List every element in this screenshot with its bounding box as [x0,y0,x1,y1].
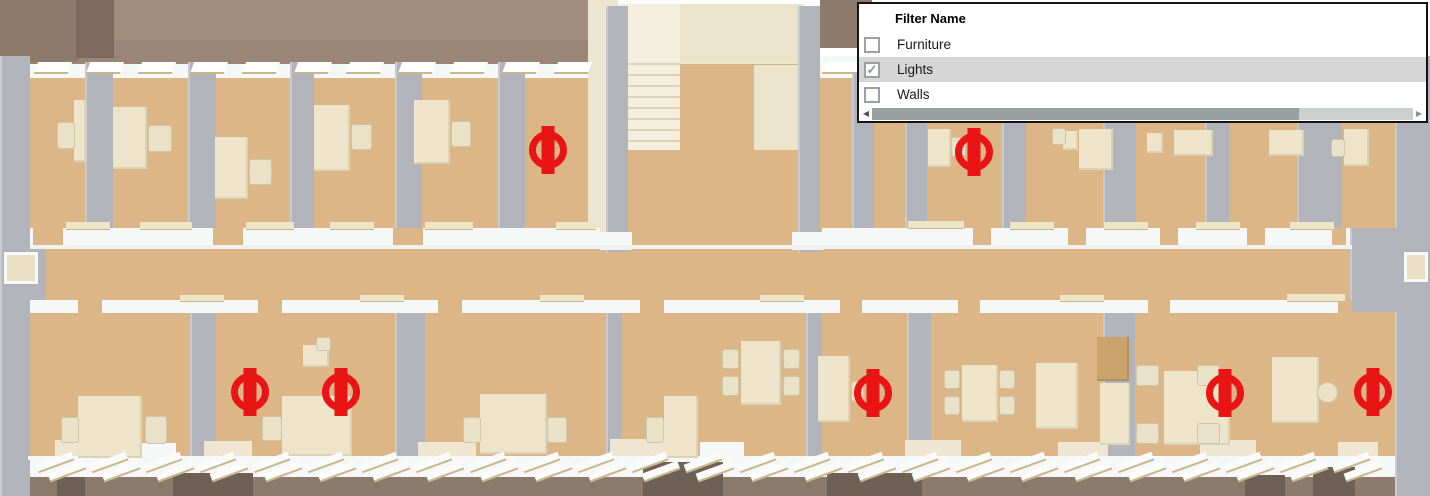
roof-corner [0,0,78,62]
chair [722,376,739,396]
desk [113,107,147,169]
door-opening [1247,228,1265,245]
window-sill [1287,294,1345,302]
chair [722,349,739,369]
desk [664,396,698,458]
window-unit [554,62,592,74]
window-unit [138,62,176,74]
chair [783,376,800,396]
chair [1136,423,1159,444]
stair-landing [680,4,804,64]
door-opening [958,300,980,313]
partition-wall [498,62,525,248]
partition-wall [395,313,425,460]
stairwell-pillar [606,6,628,252]
window-sill [1104,222,1148,230]
corridor-wall-edge [30,245,1352,249]
door-opening [213,228,243,245]
chair [1317,382,1338,403]
window-sill [760,295,804,302]
desk [928,129,951,167]
door-opening [1160,228,1178,245]
chair [1197,423,1220,444]
door-opening [1068,228,1086,245]
desk [1079,129,1113,170]
scrollbar-track[interactable] [872,108,1413,120]
chair [451,121,471,147]
window-sill [180,295,224,302]
partition-wall [188,62,216,248]
chair [944,370,960,389]
chair [463,417,481,443]
end-window [1404,252,1428,282]
window-unit [86,62,124,74]
chair [547,417,567,443]
window-sill [908,221,964,229]
wall-corner [0,460,30,496]
filter-panel: Filter Name Furniture✓LightsWalls ◀ ▶ [857,2,1428,123]
model-viewport[interactable]: Filter Name Furniture✓LightsWalls ◀ ▶ [0,0,1430,496]
conference-table [741,341,781,405]
base-shadow [1245,475,1285,496]
base-shadow [57,477,85,496]
light-fixture-symbol [951,128,997,176]
window-unit [242,62,280,74]
door-opening [33,228,63,245]
door-opening [640,300,664,313]
desk-return [1147,133,1163,153]
light-bar-icon [1367,368,1380,416]
chair [316,337,331,351]
chair [249,159,272,185]
filter-row-lights[interactable]: ✓Lights [859,57,1426,82]
corridor-wall [822,228,1350,245]
roof-facet [112,0,592,40]
light-fixture-symbol [525,126,571,174]
window-sill [1196,222,1240,230]
chair [1052,128,1066,145]
partition-wall [907,313,931,460]
window-sill [1010,222,1054,230]
light-bar-icon [867,369,880,417]
window-unit [450,62,488,74]
filter-row-label: Furniture [897,37,951,52]
desk [1036,363,1078,429]
desk [1269,130,1304,156]
wall-corner [1395,456,1430,496]
light-bar-icon [335,368,348,416]
partition-wall [606,313,622,460]
filter-list: Furniture✓LightsWalls [859,32,1426,107]
light-fixture-symbol [318,368,364,416]
chair [999,396,1015,415]
chair [57,122,75,149]
window-unit [34,62,72,74]
roof-corner-facet [76,0,114,58]
window-sill [360,295,404,302]
checkbox-walls[interactable] [864,87,880,103]
desk [1272,357,1319,423]
chair [61,417,79,443]
desk [215,137,248,199]
scroll-right-arrow-icon[interactable]: ▶ [1413,107,1425,121]
stairwell-panel [754,65,800,150]
stairwell-pillar [798,6,820,252]
window-unit [398,62,436,74]
window-sill [425,222,473,230]
scrollbar-thumb[interactable] [872,108,1299,120]
end-door [4,252,38,284]
door-opening [1148,300,1170,313]
filter-row-furniture[interactable]: Furniture [859,32,1426,57]
window-sill [66,222,110,230]
light-bar-icon [244,368,257,416]
desk [78,396,142,458]
window-unit [190,62,228,74]
chair [1136,365,1159,386]
window-sill [330,222,374,230]
wall-segment [700,442,744,457]
chair [944,396,960,415]
light-bar-icon [542,126,555,174]
entry-opening [682,65,754,150]
window-unit [294,62,332,74]
light-bar-icon [1219,369,1232,417]
window-sill [556,222,596,230]
door-opening [1332,228,1346,245]
partition-wall [190,313,216,460]
desk [480,394,547,454]
filter-row-walls[interactable]: Walls [859,82,1426,107]
cabinet [1100,383,1130,445]
partition-wall [85,62,113,248]
door-opening [840,300,862,313]
chair [145,416,167,444]
chair [783,349,800,369]
filter-panel-title: Filter Name [859,4,1426,32]
checkbox-furniture[interactable] [864,37,880,53]
corridor-wall [30,228,600,245]
light-bar-icon [968,128,981,176]
chair [1331,139,1345,157]
window-unit [502,62,540,74]
door-opening [393,228,423,245]
conference-table [962,365,998,422]
filter-row-label: Lights [897,62,933,77]
horizontal-scrollbar[interactable]: ◀ ▶ [859,107,1426,121]
chair [999,370,1015,389]
desk [1174,130,1213,156]
window-sill [1290,222,1334,230]
light-fixture-symbol [850,369,896,417]
light-fixture-symbol [227,368,273,416]
desk [818,356,850,422]
cabinet [1097,337,1129,381]
window-unit [346,62,384,74]
chair [148,125,172,152]
door-opening [78,300,102,313]
chair [646,417,664,443]
desk [314,105,350,171]
desk [74,100,86,162]
chair [351,124,372,150]
door-opening [973,228,991,245]
checkbox-lights[interactable]: ✓ [864,62,880,78]
desk [414,100,450,164]
window-sill [140,222,192,230]
light-fixture-symbol [1350,368,1396,416]
window-sill [246,222,294,230]
window-unit [822,62,860,74]
window-sill [540,295,584,302]
desk [1344,129,1369,166]
light-fixture-symbol [1202,369,1248,417]
window-sill [1060,295,1104,302]
filter-row-label: Walls [897,87,930,102]
partition-wall [290,62,314,248]
door-opening [258,300,282,313]
door-opening [438,300,462,313]
chair [262,416,282,441]
scroll-left-arrow-icon[interactable]: ◀ [860,107,872,121]
